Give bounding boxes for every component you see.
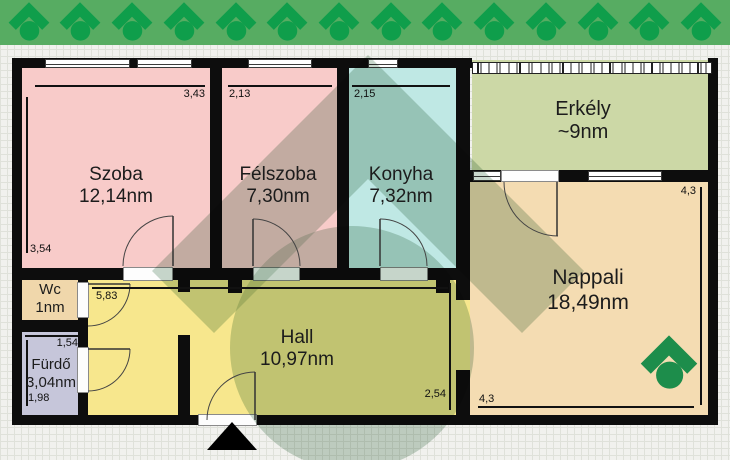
dim-felszoba-width: 2,13 xyxy=(229,88,250,100)
roof-house-logo xyxy=(575,2,621,43)
room-name: Erkély xyxy=(503,98,663,121)
label-szoba: Szoba 12,14nm xyxy=(36,164,196,208)
room-area: 18,49nm xyxy=(498,290,678,315)
dim-nappali-width: 4,3 xyxy=(479,393,494,405)
dim-nappali-height: 4,3 xyxy=(652,185,696,197)
roof-house-logo xyxy=(626,2,672,43)
window-felszoba xyxy=(248,59,312,68)
room-name: Konyha xyxy=(321,164,481,186)
roof-house-logo xyxy=(638,335,700,392)
door-opening-entrance xyxy=(198,414,257,426)
label-furdo: Fürdő 3,04nm xyxy=(11,356,91,392)
window-nappali-large xyxy=(588,171,662,181)
roof-house-logo xyxy=(523,2,569,43)
room-area: 7,32nm xyxy=(321,186,481,208)
door-opening-szoba xyxy=(123,267,173,281)
room-area: 10,97nm xyxy=(217,349,377,371)
wall-pier-1 xyxy=(178,280,190,292)
roof-house-logo xyxy=(316,2,362,43)
room-area: ~9nm xyxy=(503,121,663,144)
roof-house-logo xyxy=(471,2,517,43)
label-hall: Hall 10,97nm xyxy=(217,327,377,371)
dim-hall-height: 2,54 xyxy=(400,388,446,400)
dim-furdo-width: 1,54 xyxy=(30,337,78,349)
roof-house-logo xyxy=(161,2,207,43)
label-nappali: Nappali 18,49nm xyxy=(498,265,678,315)
dim-szoba-height: 3,54 xyxy=(30,243,51,255)
wall-hall-stub xyxy=(178,335,190,415)
wall-szoba-felszoba xyxy=(210,58,222,268)
window-konyha xyxy=(368,59,398,68)
window-szoba-left xyxy=(45,59,130,68)
wall-outer-right xyxy=(708,58,718,425)
window-szoba-right xyxy=(137,59,192,68)
roof-house-logo xyxy=(109,2,155,43)
roof-house-logo xyxy=(368,2,414,43)
wall-wc-furdo xyxy=(22,320,78,332)
roof-house-logo xyxy=(57,2,103,43)
floorplan-canvas: Szoba 12,14nm Félszoba 7,30nm Konyha 7,3… xyxy=(0,0,730,460)
brand-banner xyxy=(0,0,730,45)
door-opening-felszoba xyxy=(253,267,300,281)
wall-felszoba-konyha xyxy=(337,58,349,268)
room-area: 12,14nm xyxy=(36,186,196,208)
roof-house-logo xyxy=(678,2,724,43)
wall-pier-2 xyxy=(228,280,242,293)
room-name: Nappali xyxy=(498,265,678,290)
room-name: Szoba xyxy=(36,164,196,186)
label-erkely: Erkély ~9nm xyxy=(503,98,663,144)
roof-house-logo xyxy=(419,2,465,43)
label-wc: Wc 1nm xyxy=(10,281,90,317)
roof-house-logo xyxy=(264,2,310,43)
door-opening-balcony xyxy=(501,170,559,182)
entrance-arrow xyxy=(207,422,257,450)
balcony-railing xyxy=(472,62,712,74)
room-area: 3,04nm xyxy=(11,374,91,392)
roof-house-logo xyxy=(213,2,259,43)
room-area: 1nm xyxy=(10,299,90,317)
room-name: Wc xyxy=(10,281,90,299)
room-name: Hall xyxy=(217,327,377,349)
roof-house-logo xyxy=(6,2,52,43)
wall-hall-nappali-lower xyxy=(456,370,470,415)
room-name: Fürdő xyxy=(11,356,91,374)
agency-logo xyxy=(638,335,700,393)
dim-szoba-width: 3,43 xyxy=(160,88,205,100)
dim-furdo-height: 1,98 xyxy=(28,392,49,404)
wall-pier-3 xyxy=(436,280,450,293)
dim-hall-width: 5,83 xyxy=(96,290,117,302)
wall-outer-bottom xyxy=(12,415,718,425)
dim-konyha-width: 2,15 xyxy=(354,88,375,100)
label-konyha: Konyha 7,32nm xyxy=(321,164,481,208)
door-opening-konyha xyxy=(380,267,428,281)
